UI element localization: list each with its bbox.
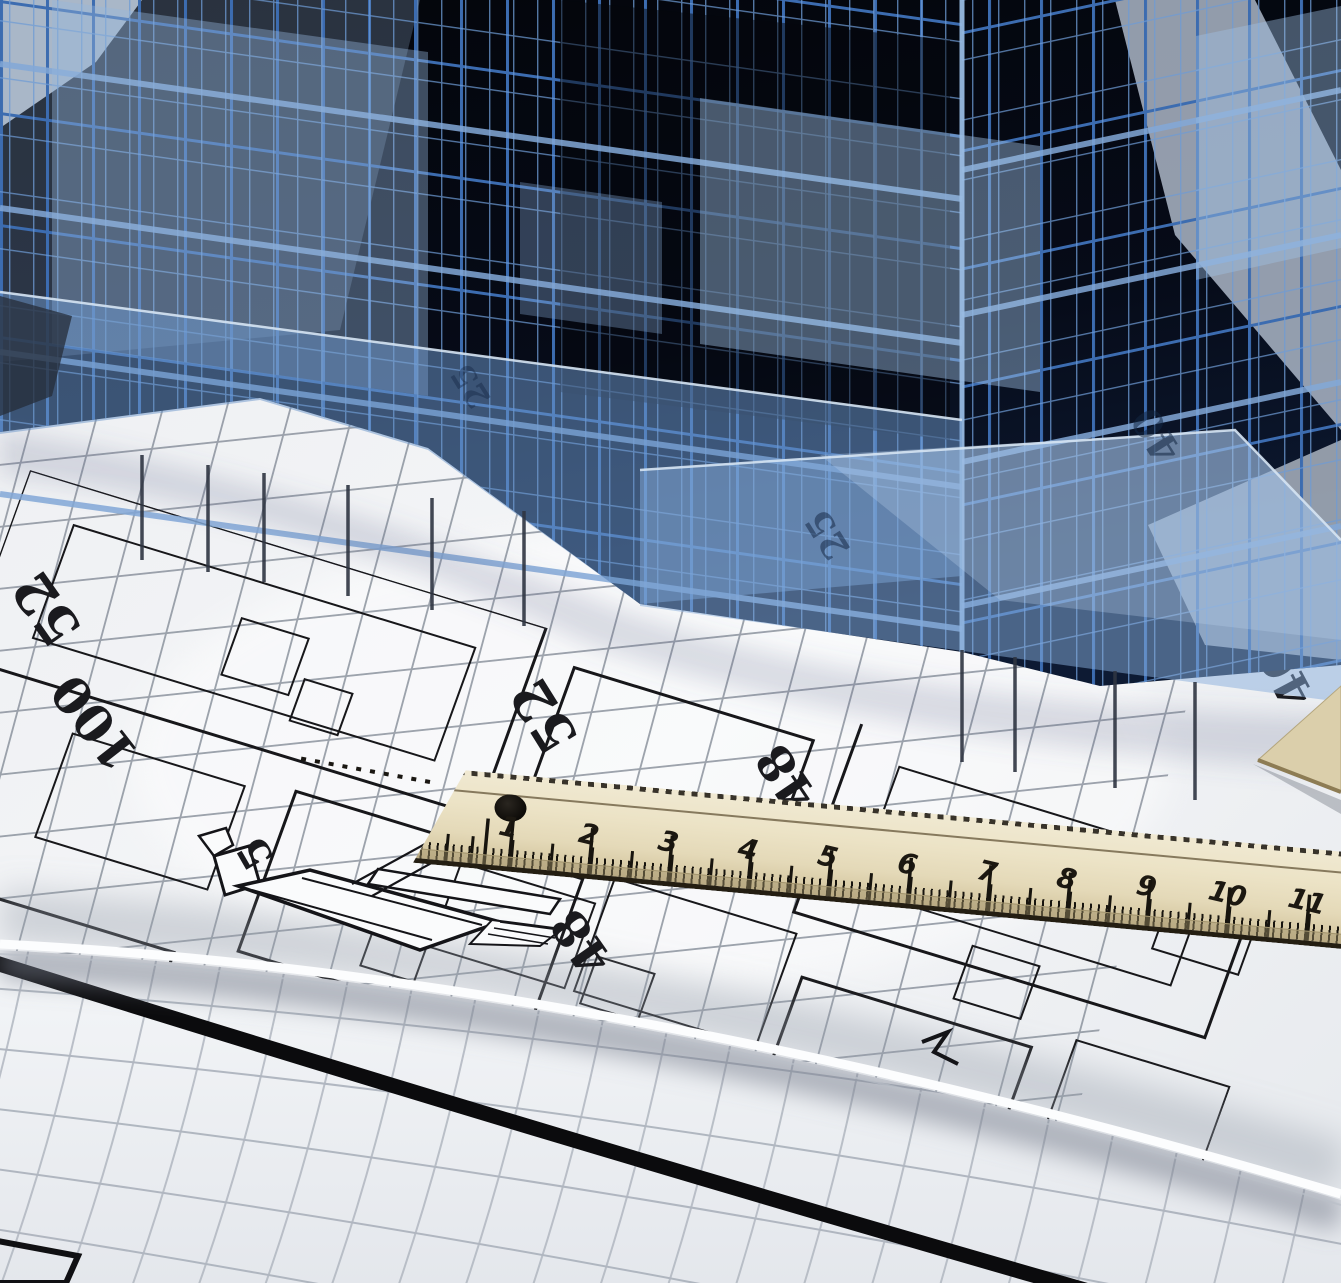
architectural-render: 52 100 52 48 40 5 48 bbox=[0, 0, 1341, 1283]
blueprint-scene: 52 100 52 48 40 5 48 bbox=[0, 0, 1341, 1283]
